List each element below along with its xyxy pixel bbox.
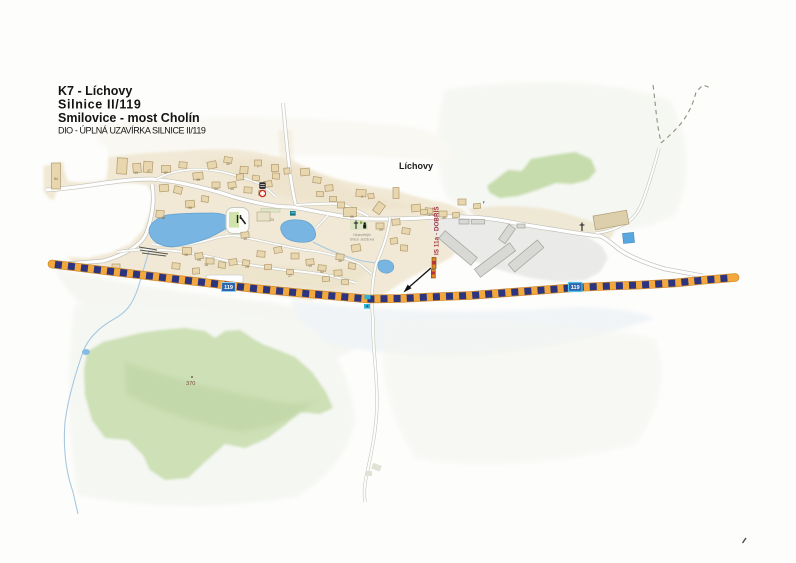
svg-text:16: 16	[184, 253, 188, 257]
svg-text:7: 7	[257, 165, 259, 169]
svg-text:370: 370	[186, 381, 195, 387]
svg-text:27: 27	[288, 274, 292, 278]
svg-text:Líchovy: Líchovy	[399, 161, 433, 171]
svg-text:45: 45	[230, 187, 234, 191]
svg-text:46: 46	[161, 216, 165, 220]
svg-text:20: 20	[379, 228, 383, 232]
svg-text:36: 36	[338, 259, 342, 263]
svg-text:23: 23	[270, 218, 274, 222]
svg-text:119: 119	[571, 285, 580, 291]
svg-text:10: 10	[243, 237, 247, 241]
svg-text:57: 57	[164, 171, 168, 175]
svg-text:19: 19	[308, 264, 312, 268]
svg-text:Silnice II/119: Silnice II/119	[58, 98, 141, 112]
svg-text:↟̇: ↟̇	[482, 200, 486, 205]
svg-text:18: 18	[204, 263, 208, 267]
svg-text:29: 29	[245, 265, 249, 269]
svg-text:17: 17	[428, 213, 432, 217]
svg-text:44: 44	[214, 187, 218, 191]
svg-text:34: 34	[188, 206, 192, 210]
svg-text:DIO - ÚPLNÁ UZAVÍRKA SILNICE I: DIO - ÚPLNÁ UZAVÍRKA SILNICE II/119	[58, 126, 206, 136]
svg-text:42: 42	[226, 162, 230, 166]
svg-text:Srdce Ježíšova: Srdce Ježíšova	[350, 238, 375, 242]
svg-text:Smilovice - most Cholín: Smilovice - most Cholín	[58, 111, 200, 125]
svg-text:K7 - Líchovy: K7 - Líchovy	[58, 84, 132, 98]
svg-text:Nejsvětější: Nejsvětější	[353, 233, 371, 237]
svg-text:52: 52	[320, 270, 324, 274]
svg-text:66: 66	[350, 215, 354, 219]
svg-text:13: 13	[134, 171, 138, 175]
svg-text:2: 2	[361, 195, 363, 199]
svg-text:IS 11a - DOBŘÍŠ: IS 11a - DOBŘÍŠ	[433, 206, 441, 255]
svg-text:119: 119	[224, 285, 233, 291]
svg-text:47: 47	[147, 169, 151, 173]
svg-text:49: 49	[442, 216, 446, 220]
svg-text:84: 84	[54, 177, 58, 181]
svg-text:48: 48	[196, 178, 200, 182]
svg-text:28: 28	[197, 258, 201, 262]
